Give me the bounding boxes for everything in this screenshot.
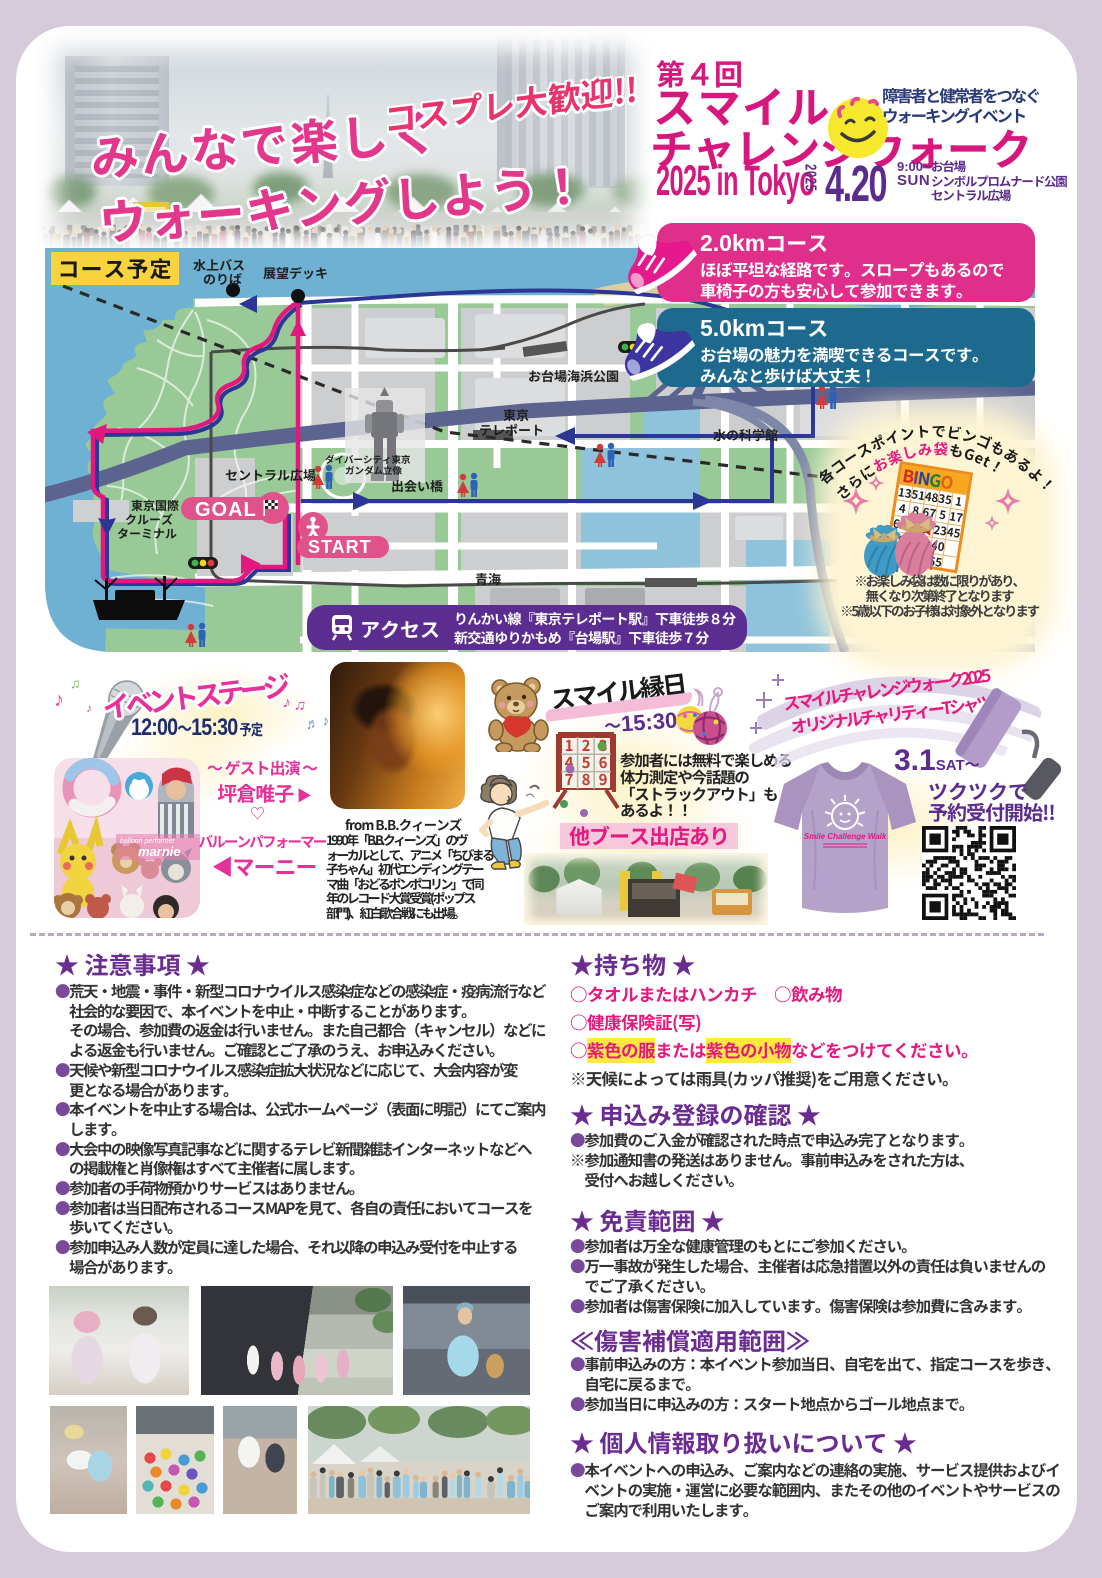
svg-text:ガンダム立像: ガンダム立像: [345, 463, 403, 477]
svg-text:45: 45: [946, 524, 962, 542]
svg-text:出会い橋: 出会い橋: [391, 476, 443, 495]
svg-text:のりば: のりば: [203, 269, 242, 288]
svg-text:青海: 青海: [475, 569, 501, 588]
svg-text:♫: ♫: [70, 673, 81, 693]
svg-text:水の科学館: 水の科学館: [713, 425, 778, 444]
svg-text:GOAL: GOAL: [195, 499, 257, 521]
svg-text:9: 9: [599, 769, 608, 790]
svg-text:テレポート: テレポート: [479, 420, 544, 439]
svg-text:START: START: [308, 537, 372, 557]
svg-text:8: 8: [582, 769, 591, 790]
svg-text:Smile Challenge Walk: Smile Challenge Walk: [804, 832, 887, 841]
svg-text:♪: ♪: [86, 699, 92, 716]
svg-text:展望デッキ: 展望デッキ: [263, 263, 328, 282]
svg-text:お台場海浜公園: お台場海浜公園: [528, 366, 619, 385]
svg-text:セントラル広場: セントラル広場: [225, 465, 316, 484]
svg-text:ターミナル: ターミナル: [117, 525, 177, 542]
svg-text:35: 35: [937, 491, 953, 509]
svg-text:♪: ♪: [54, 683, 64, 712]
svg-text:marnie: marnie: [138, 844, 181, 859]
svg-text:※5歳以下のお子様は対象外となります: ※5歳以下のお子様は対象外となります: [840, 600, 1040, 620]
